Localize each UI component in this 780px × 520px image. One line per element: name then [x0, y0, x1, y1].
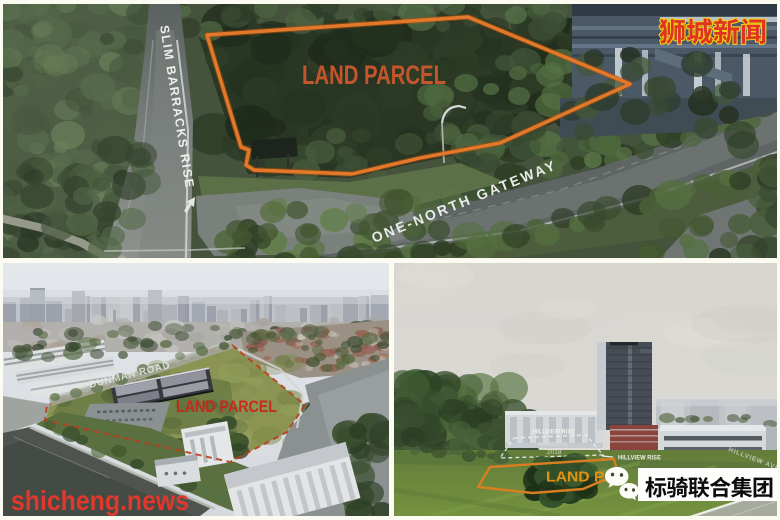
svg-text:shicheng.news: shicheng.news: [11, 485, 189, 516]
svg-text:HILLVIEW RISE: HILLVIEW RISE: [618, 456, 661, 462]
svg-text:LAND PARCEL: LAND PARCEL: [302, 60, 446, 90]
svg-text:2018: 2018: [547, 449, 562, 456]
svg-text:LAND PARCEL: LAND PARCEL: [176, 397, 277, 416]
svg-text:AWARDED IN: AWARDED IN: [538, 442, 567, 448]
svg-text:HILLVIEW RISE: HILLVIEW RISE: [533, 430, 575, 436]
